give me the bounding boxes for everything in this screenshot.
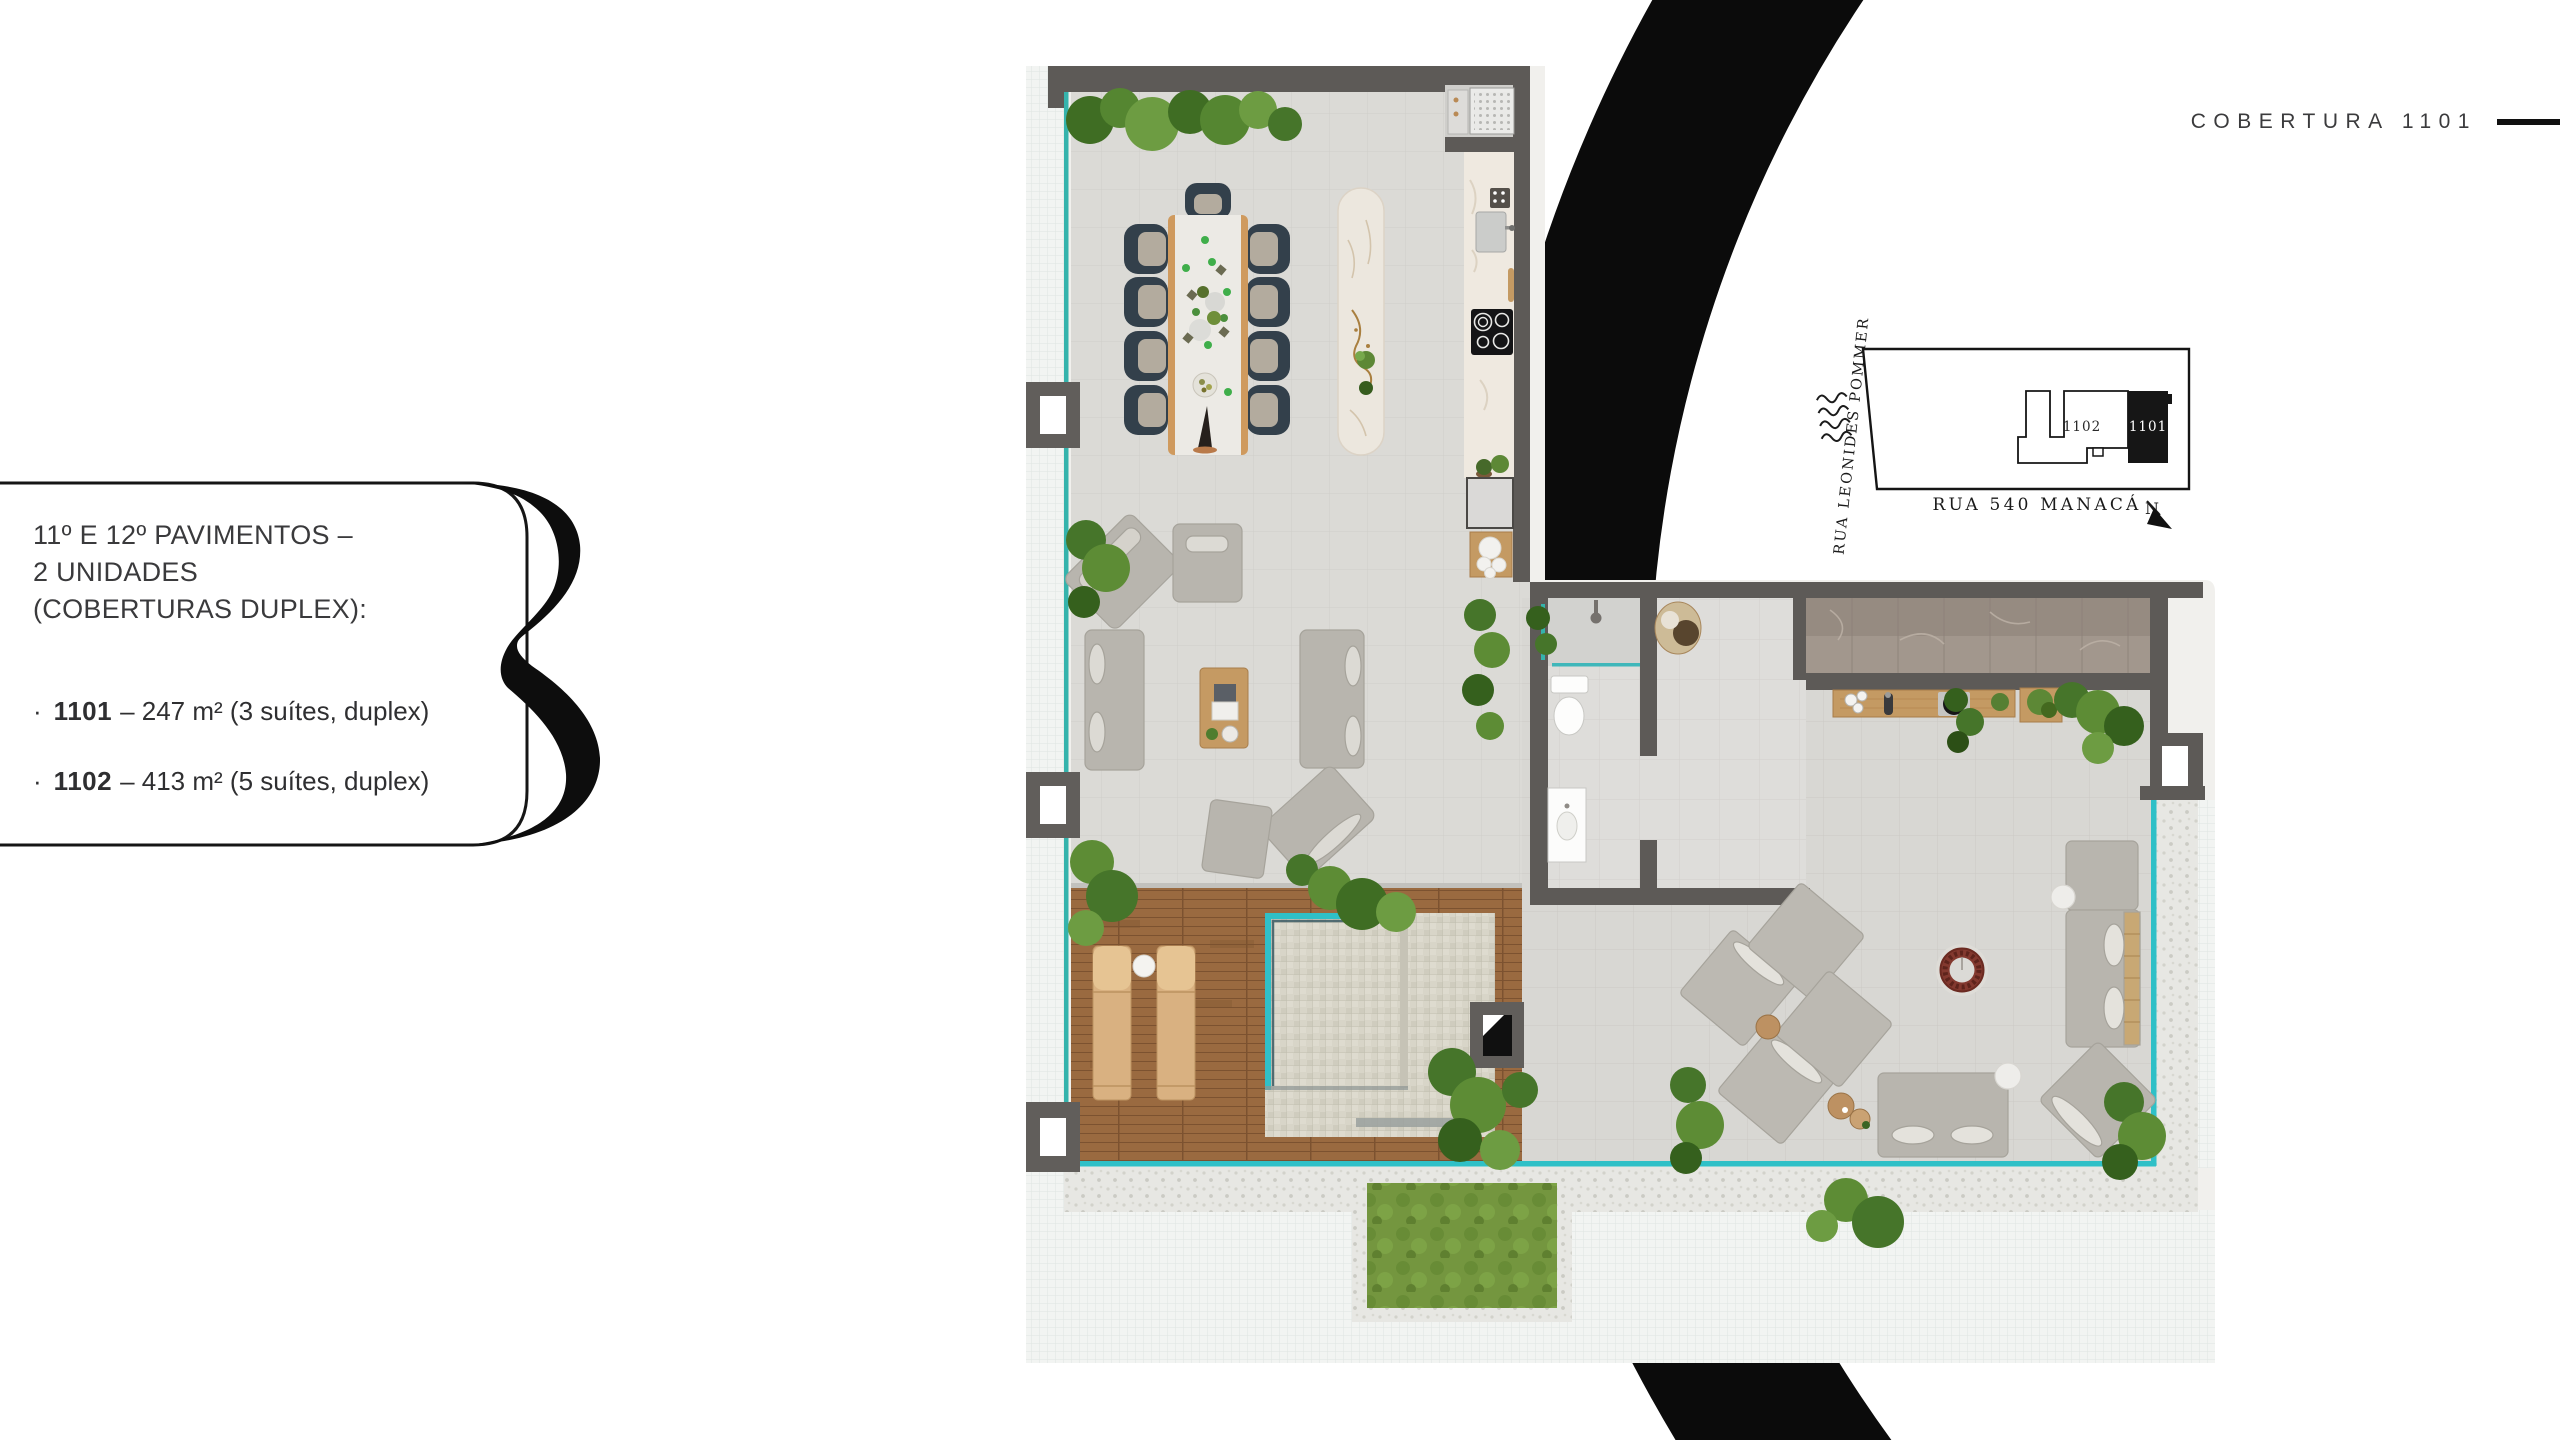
page-title: COBERTURA 1101 <box>2191 110 2477 134</box>
info-title-line-1: 11º E 12º PAVIMENTOS – <box>33 517 367 554</box>
north-arrow-icon: N <box>2145 499 2172 529</box>
grass-patch <box>1352 1168 1572 1322</box>
unit-1101-spec: ·1101– 247 m² (3 suítes, duplex) <box>33 696 429 727</box>
marble-corridor <box>1806 598 2150 673</box>
unit-label-1102: 1102 <box>2063 419 2101 435</box>
bar-counter <box>1833 690 2015 717</box>
unit-1102-number: 1102 <box>54 766 112 796</box>
unit-1101-detail: – 247 m² (3 suítes, duplex) <box>120 696 429 726</box>
page: RUA LEONIDES POMMER RUA 540 MANACÁ 1102 … <box>0 0 2560 1440</box>
header-rule <box>2497 119 2560 125</box>
street-label-left: RUA LEONIDES POMMER <box>1832 316 1873 556</box>
kitchen-island <box>1338 188 1384 455</box>
unit-1102-spec: ·1102– 413 m² (5 suítes, duplex) <box>33 766 429 797</box>
info-title-line-3: (COBERTURAS DUPLEX): <box>33 591 367 628</box>
info-box-text: 11º E 12º PAVIMENTOS – 2 UNIDADES (COBER… <box>33 517 367 628</box>
site-map: RUA LEONIDES POMMER RUA 540 MANACÁ 1102 … <box>1816 316 2189 556</box>
unit-label-1101: 1101 <box>2129 419 2167 435</box>
cooktop <box>1471 309 1513 355</box>
bar-cabinet <box>1470 532 1512 579</box>
coffee-table <box>1200 668 1248 748</box>
header: COBERTURA 1101 <box>2191 110 2560 134</box>
shaft-opening <box>2162 746 2188 786</box>
unit-1101-number: 1101 <box>54 696 112 726</box>
street-label-bottom: RUA 540 MANACÁ <box>1932 494 2141 515</box>
fire-pit <box>1936 944 1988 996</box>
unit-1102-detail: – 413 m² (5 suítes, duplex) <box>120 766 429 796</box>
info-title-line-2: 2 UNIDADES <box>33 554 367 591</box>
inner-room-chair <box>1655 602 1701 654</box>
